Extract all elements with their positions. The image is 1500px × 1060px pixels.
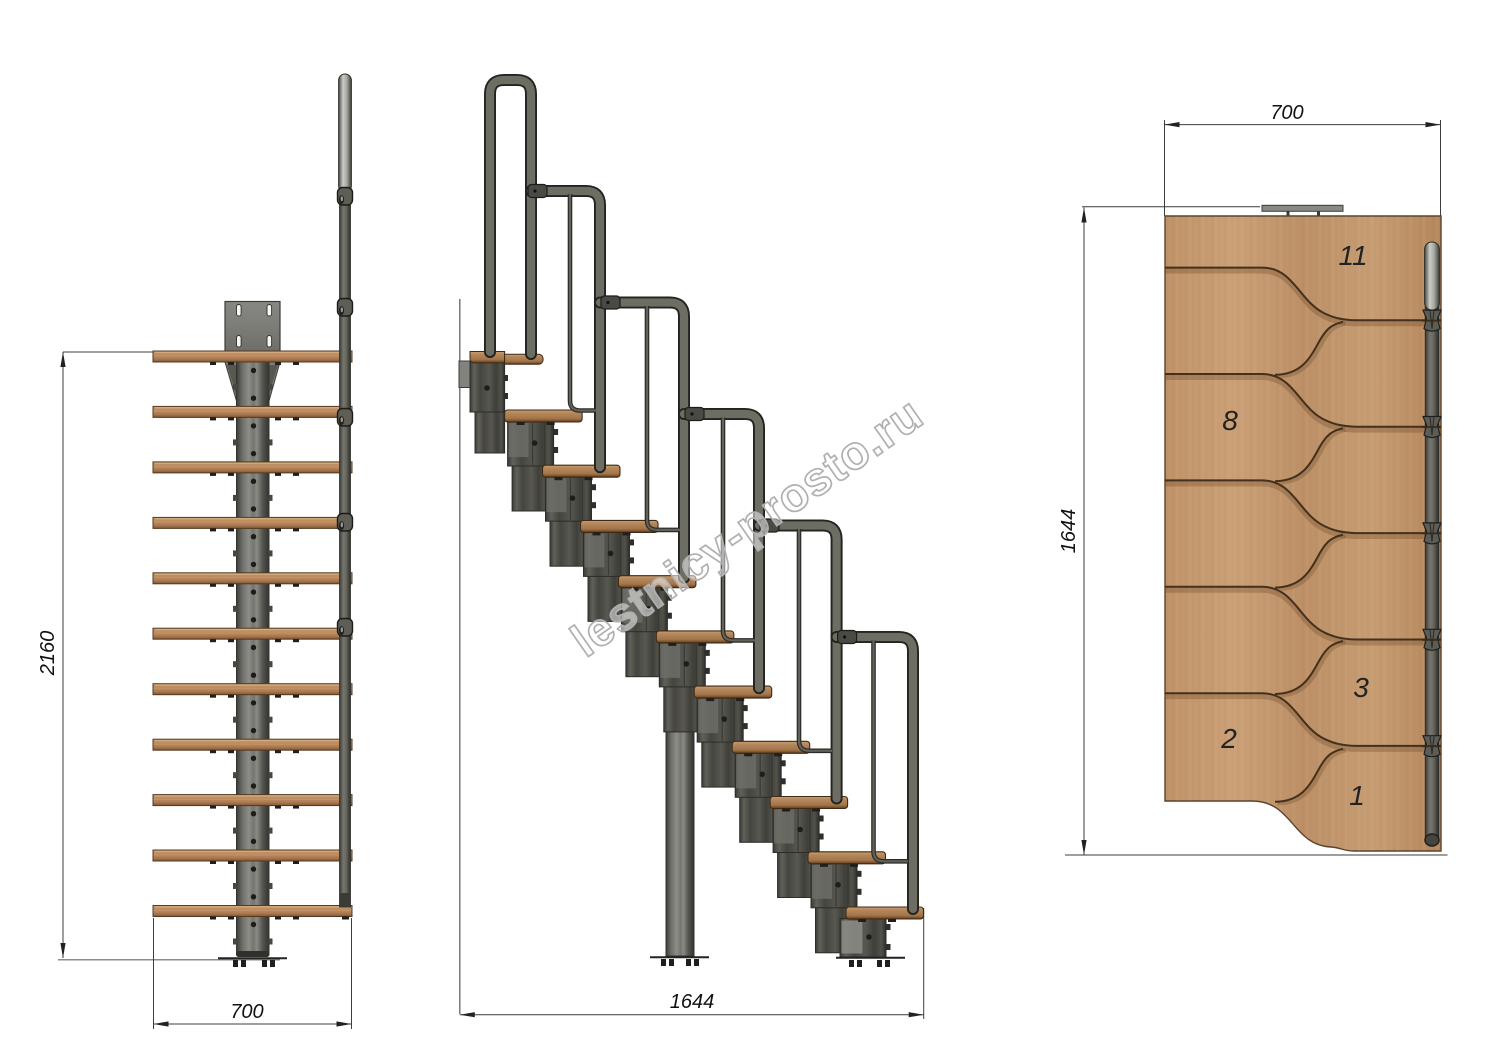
svg-text:2: 2 (1220, 723, 1237, 754)
svg-text:1: 1 (1349, 780, 1365, 811)
svg-text:2160: 2160 (37, 631, 59, 677)
svg-text:700: 700 (1270, 102, 1303, 124)
svg-text:1644: 1644 (1058, 509, 1080, 554)
svg-text:11: 11 (1338, 240, 1367, 271)
svg-text:3: 3 (1353, 672, 1369, 703)
svg-text:1644: 1644 (670, 991, 715, 1013)
svg-text:700: 700 (230, 1001, 263, 1023)
svg-text:8: 8 (1222, 405, 1238, 436)
